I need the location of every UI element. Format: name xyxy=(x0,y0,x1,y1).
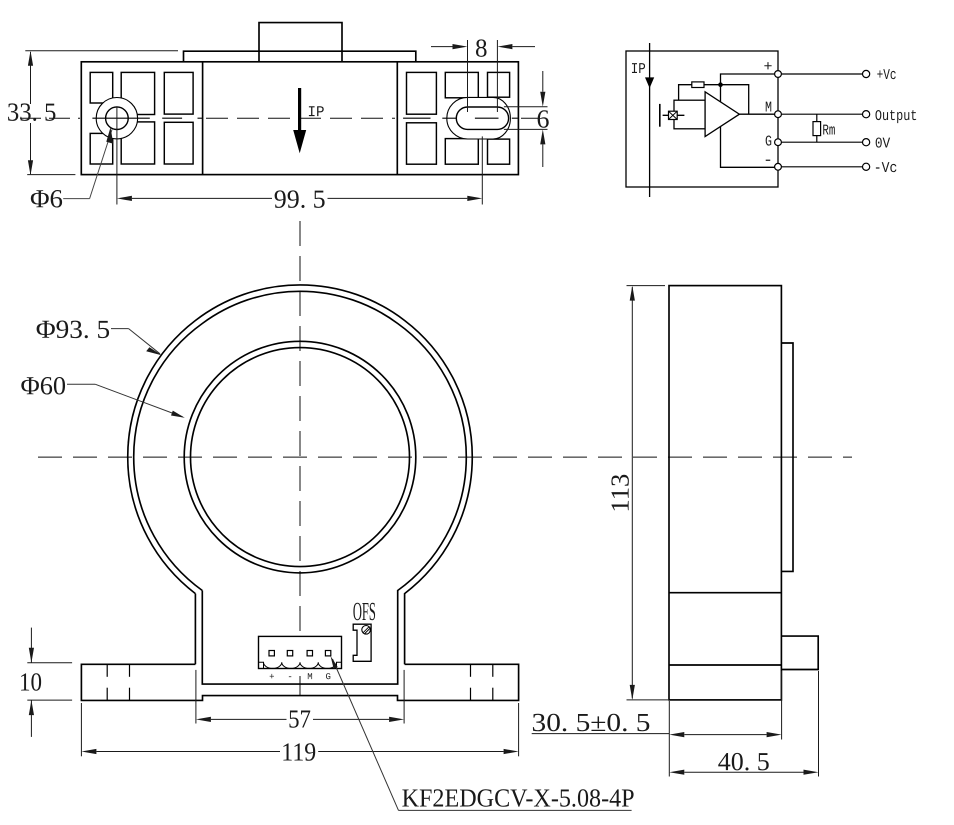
svg-text:+Vc: +Vc xyxy=(877,67,897,84)
svg-text:OFS: OFS xyxy=(353,597,376,626)
svg-text:-: - xyxy=(763,152,773,169)
svg-text:G: G xyxy=(326,672,331,682)
svg-text:G: G xyxy=(765,134,772,151)
svg-text:40. 5: 40. 5 xyxy=(718,747,770,776)
svg-text:99. 5: 99. 5 xyxy=(274,185,326,214)
svg-text:8: 8 xyxy=(475,34,488,63)
svg-text:10: 10 xyxy=(19,667,42,696)
svg-text:Φ93. 5: Φ93. 5 xyxy=(36,315,111,344)
svg-text:Rm: Rm xyxy=(822,123,835,140)
svg-text:113: 113 xyxy=(606,474,635,513)
svg-text:57: 57 xyxy=(288,704,311,733)
svg-text:IP: IP xyxy=(631,61,646,78)
svg-text:119: 119 xyxy=(281,737,316,766)
svg-text:6: 6 xyxy=(536,105,549,134)
svg-text:Φ6: Φ6 xyxy=(30,184,63,213)
svg-text:30. 5±0. 5: 30. 5±0. 5 xyxy=(532,708,651,737)
svg-text:IP: IP xyxy=(307,104,324,121)
svg-text:M: M xyxy=(765,100,772,117)
svg-text:Φ60: Φ60 xyxy=(20,371,66,400)
svg-text:Output: Output xyxy=(875,108,918,125)
svg-text:KF2EDGCV-X-5.08-4P: KF2EDGCV-X-5.08-4P xyxy=(402,783,635,812)
svg-text:0V: 0V xyxy=(875,136,890,153)
svg-text:-Vc: -Vc xyxy=(874,160,898,177)
svg-text:+: + xyxy=(763,59,772,76)
svg-text:M: M xyxy=(307,672,312,682)
svg-text:33. 5: 33. 5 xyxy=(7,98,57,127)
svg-text:-: - xyxy=(287,672,292,682)
svg-text:+: + xyxy=(269,672,274,682)
